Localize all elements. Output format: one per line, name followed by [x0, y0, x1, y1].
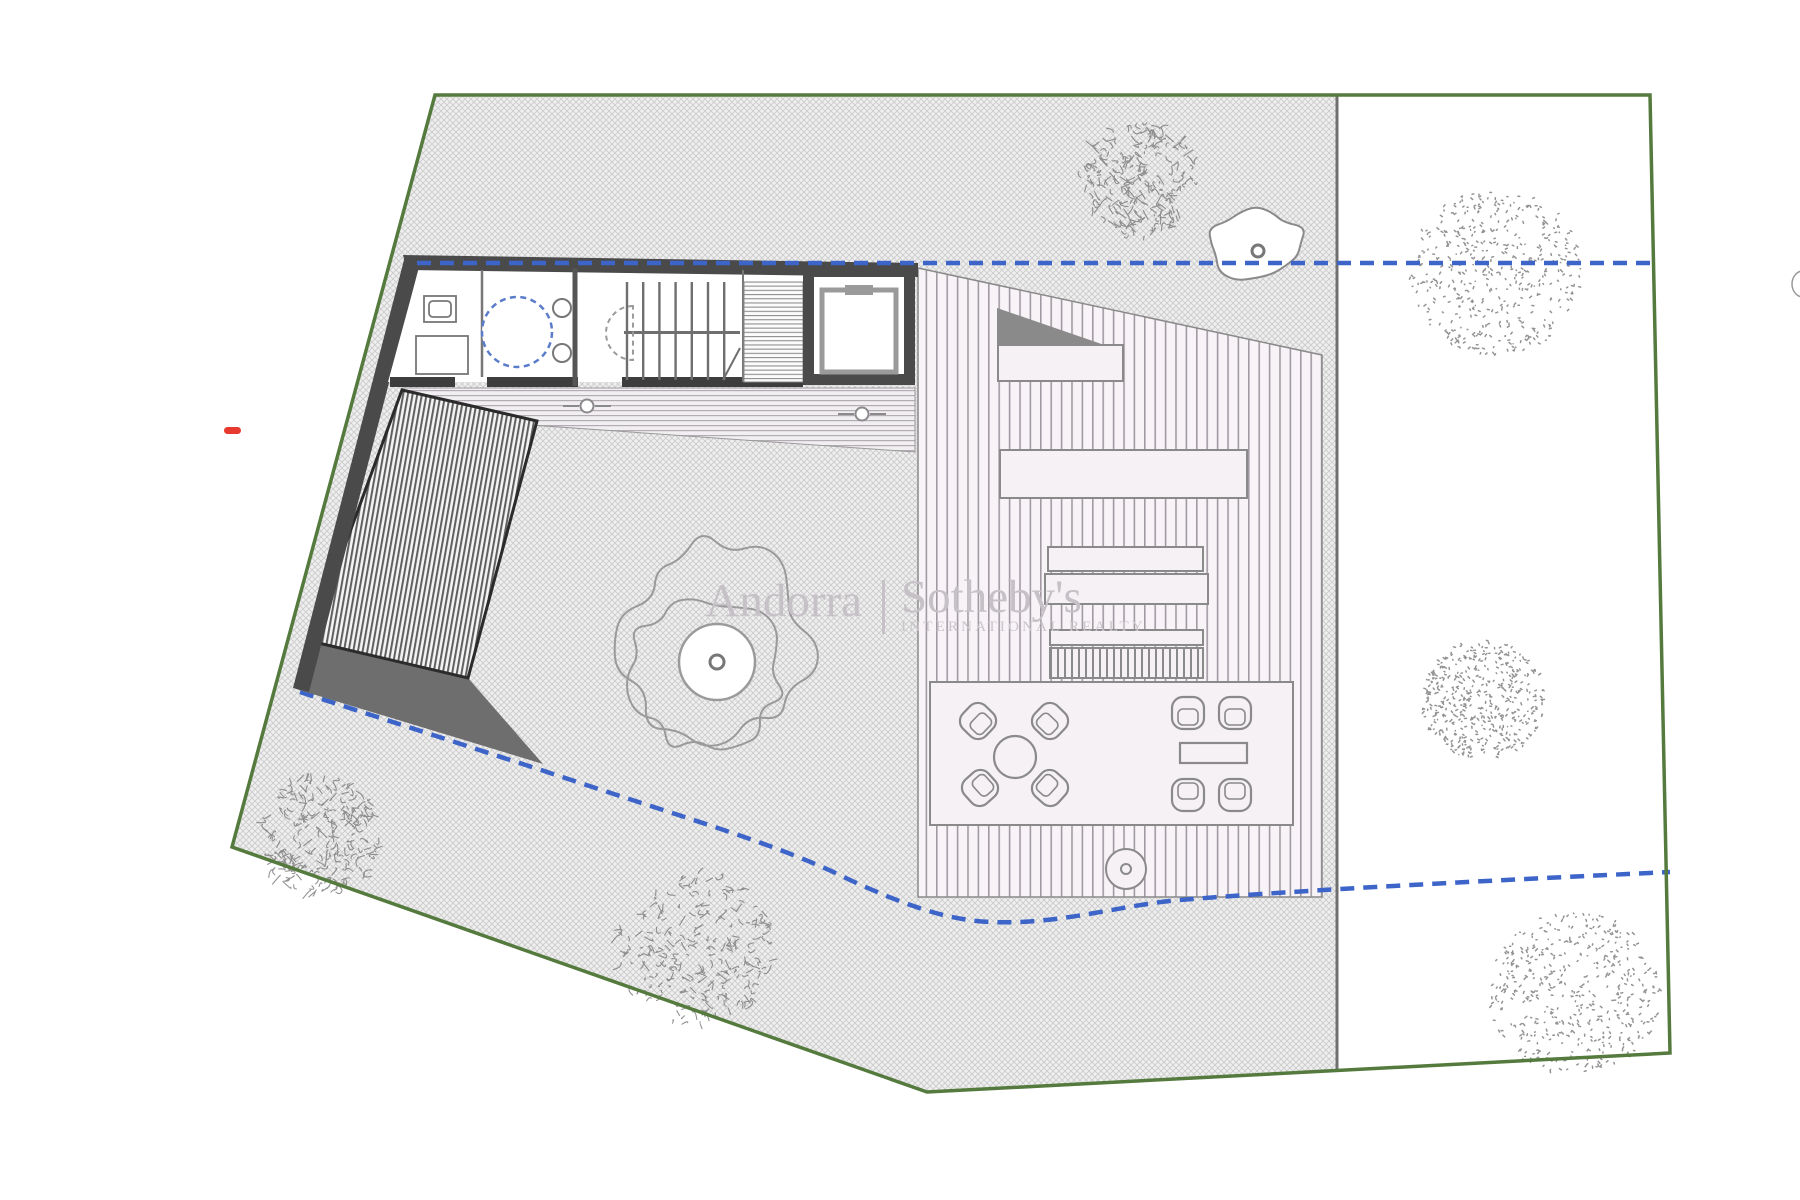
round-table-icon	[994, 736, 1036, 778]
watermark: Andorra Sotheby's INTERNATIONAL REALTY	[705, 571, 1146, 635]
deck-bench	[998, 345, 1123, 381]
deck-step-grille	[1050, 648, 1203, 678]
site-plan-drawing: Andorra Sotheby's INTERNATIONAL REALTY	[0, 0, 1800, 1200]
tree-trunk-dot	[710, 655, 724, 669]
right-clear-strip	[1337, 95, 1670, 1070]
chair-icon	[1219, 697, 1251, 729]
deck-bench	[1000, 450, 1247, 498]
chair-icon	[1172, 697, 1204, 729]
rect-table-icon	[1180, 743, 1247, 763]
watermark-brand-left: Andorra	[705, 575, 862, 627]
elevator	[803, 266, 915, 385]
watermark-subtitle: INTERNATIONAL REALTY	[901, 619, 1146, 635]
chair-icon	[1219, 779, 1251, 811]
watermark-brand-right: Sotheby's	[901, 571, 1082, 623]
building	[388, 255, 918, 387]
sink	[553, 344, 571, 362]
elevator-car	[822, 290, 896, 372]
fire-pit-icon	[1106, 849, 1146, 889]
sink	[553, 299, 571, 317]
chair-icon	[1172, 779, 1204, 811]
deck-bench	[1048, 547, 1203, 571]
ramp	[744, 282, 803, 382]
red-marker	[224, 427, 241, 434]
round-tub	[482, 297, 552, 367]
edge-clipped-circle	[1792, 271, 1800, 297]
watermark-divider	[882, 580, 885, 634]
